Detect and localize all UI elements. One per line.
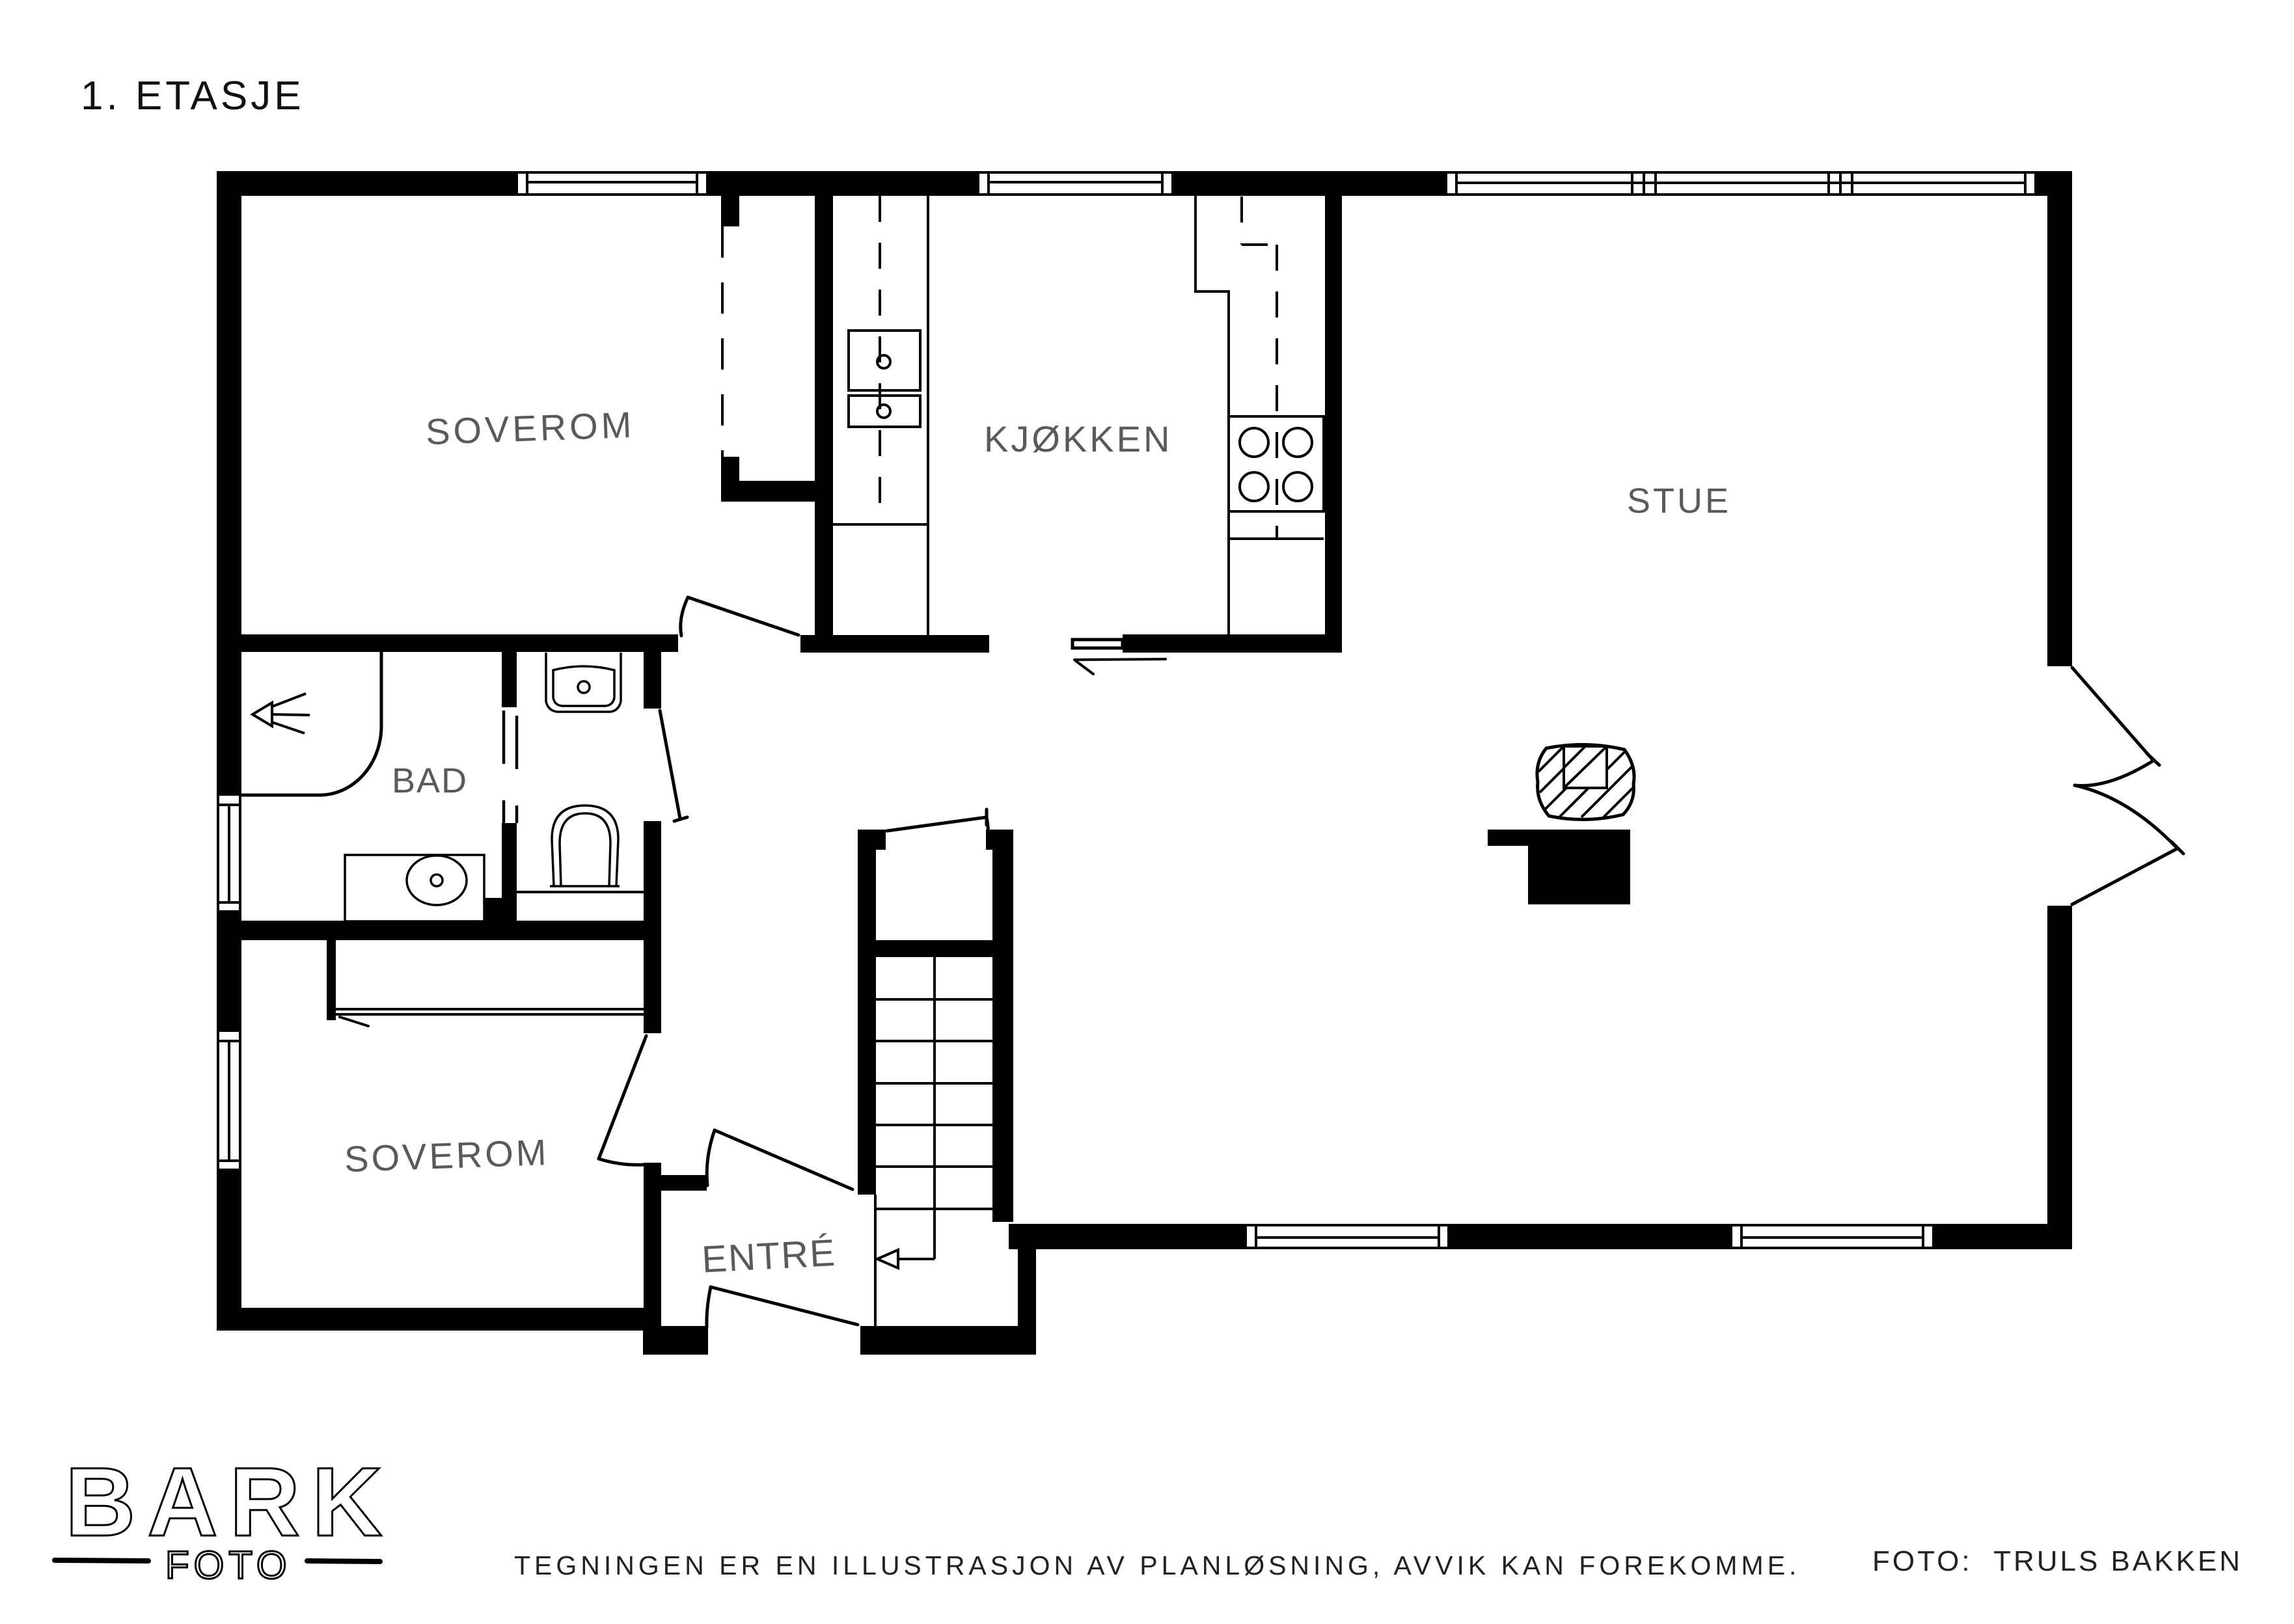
svg-text:SOVEROM: SOVEROM — [425, 404, 635, 452]
svg-text:TEGNINGEN ER EN ILLUSTRASJON A: TEGNINGEN ER EN ILLUSTRASJON AV PLANLØSN… — [514, 1550, 1800, 1580]
svg-text:FOTO: TRULS BAKKEN: FOTO: TRULS BAKKEN — [1872, 1545, 2243, 1577]
svg-text:BAD: BAD — [392, 761, 468, 800]
svg-text:KJØKKEN: KJØKKEN — [984, 418, 1172, 459]
svg-text:ENTRÉ: ENTRÉ — [701, 1232, 838, 1281]
svg-text:STUE: STUE — [1627, 481, 1731, 521]
svg-text:FOTO: FOTO — [165, 1543, 292, 1587]
svg-text:SOVEROM: SOVEROM — [344, 1131, 549, 1180]
svg-text:1. ETASJE: 1. ETASJE — [81, 74, 305, 118]
svg-text:BARK: BARK — [65, 1447, 394, 1556]
